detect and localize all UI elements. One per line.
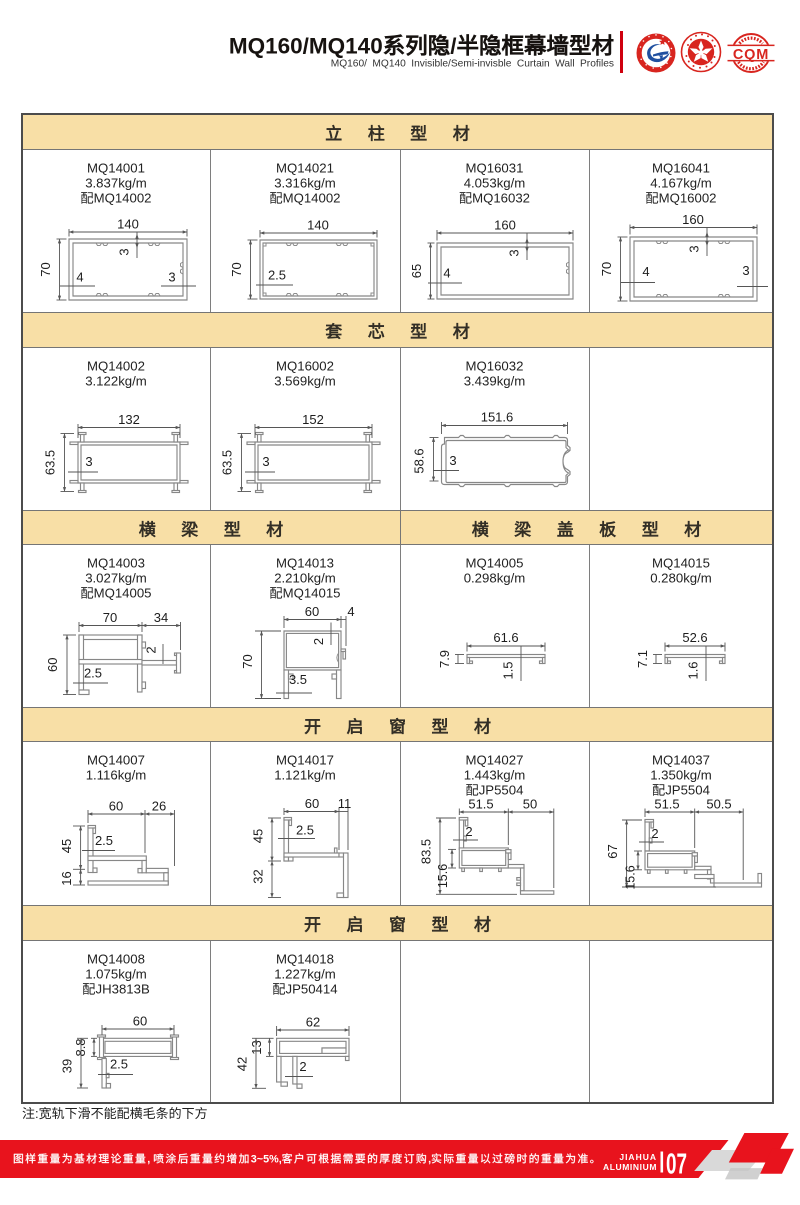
svg-text:MQ14001: MQ14001 bbox=[87, 160, 145, 175]
svg-text:63.5: 63.5 bbox=[43, 450, 58, 475]
svg-text:MQ14015: MQ14015 bbox=[652, 555, 710, 570]
svg-text:MQ14002: MQ14002 bbox=[87, 358, 145, 373]
svg-text:4: 4 bbox=[443, 266, 450, 281]
svg-text:07: 07 bbox=[666, 1149, 687, 1181]
svg-text:3.5: 3.5 bbox=[289, 672, 307, 687]
svg-text:2.5: 2.5 bbox=[268, 268, 286, 283]
svg-text:3: 3 bbox=[449, 453, 456, 468]
svg-text:32: 32 bbox=[251, 869, 266, 883]
svg-text:4: 4 bbox=[642, 264, 649, 279]
svg-text:MQ16002: MQ16002 bbox=[659, 191, 717, 206]
svg-text:3~5%,: 3~5%, bbox=[251, 1154, 282, 1166]
svg-text:1.075kg/m: 1.075kg/m bbox=[85, 967, 147, 982]
svg-text:7.1: 7.1 bbox=[635, 650, 650, 668]
svg-text:1.5: 1.5 bbox=[501, 661, 516, 679]
svg-text:0.298kg/m: 0.298kg/m bbox=[464, 571, 526, 586]
svg-text:3.316kg/m: 3.316kg/m bbox=[274, 176, 336, 191]
svg-text:140: 140 bbox=[307, 218, 329, 233]
svg-text:60: 60 bbox=[305, 796, 319, 811]
svg-text:26: 26 bbox=[152, 799, 166, 814]
svg-text:4: 4 bbox=[76, 270, 83, 285]
svg-text:70: 70 bbox=[240, 654, 255, 668]
svg-text:15.6: 15.6 bbox=[624, 865, 638, 889]
svg-text:MQ16032: MQ16032 bbox=[466, 358, 524, 373]
svg-text::: : bbox=[35, 1106, 39, 1121]
svg-text:2: 2 bbox=[651, 826, 658, 841]
svg-text:160: 160 bbox=[682, 212, 704, 227]
svg-text:151.6: 151.6 bbox=[481, 410, 514, 425]
svg-text:3.837kg/m: 3.837kg/m bbox=[85, 176, 147, 191]
svg-text:16: 16 bbox=[59, 871, 74, 885]
svg-text:34: 34 bbox=[154, 610, 168, 625]
svg-text:51.5: 51.5 bbox=[654, 797, 679, 812]
svg-text:140: 140 bbox=[117, 217, 139, 232]
svg-text:70: 70 bbox=[229, 262, 244, 276]
svg-text:52.6: 52.6 bbox=[682, 630, 707, 645]
svg-text:3: 3 bbox=[687, 245, 702, 252]
svg-text:60: 60 bbox=[133, 1014, 147, 1029]
svg-text:1.121kg/m: 1.121kg/m bbox=[274, 768, 336, 783]
svg-text:42: 42 bbox=[235, 1057, 250, 1071]
svg-text:MQ14002: MQ14002 bbox=[283, 191, 341, 206]
svg-text:63.5: 63.5 bbox=[220, 450, 235, 475]
svg-text:MQ14017: MQ14017 bbox=[276, 752, 334, 767]
svg-text:7.9: 7.9 bbox=[437, 650, 452, 668]
svg-text:2.5: 2.5 bbox=[110, 1057, 128, 1072]
svg-text:62: 62 bbox=[306, 1015, 320, 1030]
svg-text:,: , bbox=[147, 1154, 150, 1166]
svg-text:50.5: 50.5 bbox=[706, 797, 731, 812]
svg-text:83.5: 83.5 bbox=[419, 839, 434, 864]
svg-text:4.167kg/m: 4.167kg/m bbox=[650, 176, 712, 191]
svg-text:JP50414: JP50414 bbox=[286, 982, 338, 997]
svg-text:MQ14013: MQ14013 bbox=[276, 555, 334, 570]
svg-text:8.8: 8.8 bbox=[73, 1038, 88, 1056]
svg-text:MQ16041: MQ16041 bbox=[652, 160, 710, 175]
svg-text:,: , bbox=[428, 1154, 431, 1166]
svg-text:2.5: 2.5 bbox=[84, 666, 102, 681]
svg-text:70: 70 bbox=[599, 262, 614, 276]
svg-text:60: 60 bbox=[109, 799, 123, 814]
svg-text:2.210kg/m: 2.210kg/m bbox=[274, 571, 336, 586]
svg-text:MQ160/ MQ140 Invisible/Semi-i: MQ160/ MQ140 Invisible/Semi-invisble Cur… bbox=[331, 59, 614, 70]
svg-text:1.350kg/m: 1.350kg/m bbox=[650, 768, 712, 783]
svg-text:2: 2 bbox=[465, 824, 472, 839]
svg-text:51.5: 51.5 bbox=[468, 797, 493, 812]
svg-text:1.116kg/m: 1.116kg/m bbox=[86, 768, 147, 783]
svg-text:3.027kg/m: 3.027kg/m bbox=[85, 571, 147, 586]
svg-text:2: 2 bbox=[311, 638, 326, 645]
svg-text:JP5504: JP5504 bbox=[479, 783, 524, 798]
svg-text:3.569kg/m: 3.569kg/m bbox=[274, 374, 336, 389]
svg-text:2.5: 2.5 bbox=[95, 833, 113, 848]
svg-text:60: 60 bbox=[45, 658, 60, 672]
svg-text:3: 3 bbox=[507, 249, 522, 256]
svg-text:MQ160/MQ140: MQ160/MQ140 bbox=[229, 34, 383, 59]
svg-text:JP5504: JP5504 bbox=[665, 783, 710, 798]
svg-text:4: 4 bbox=[347, 604, 354, 619]
svg-text:MQ14037: MQ14037 bbox=[652, 752, 710, 767]
svg-text:65: 65 bbox=[409, 264, 424, 278]
svg-text:MQ14021: MQ14021 bbox=[276, 160, 334, 175]
svg-text:50: 50 bbox=[523, 797, 537, 812]
svg-text:3.439kg/m: 3.439kg/m bbox=[464, 374, 526, 389]
svg-text:160: 160 bbox=[494, 218, 516, 233]
svg-text:2: 2 bbox=[144, 646, 159, 653]
svg-text:MQ14015: MQ14015 bbox=[283, 586, 341, 601]
svg-text:132: 132 bbox=[118, 412, 140, 427]
svg-text:1.6: 1.6 bbox=[686, 661, 701, 679]
svg-text:3: 3 bbox=[117, 248, 132, 255]
svg-text:39: 39 bbox=[60, 1059, 75, 1073]
svg-text:1.443kg/m: 1.443kg/m bbox=[464, 768, 526, 783]
svg-text:MQ16002: MQ16002 bbox=[276, 358, 334, 373]
svg-text:152: 152 bbox=[302, 412, 324, 427]
svg-text:70: 70 bbox=[38, 262, 53, 276]
svg-text:3: 3 bbox=[262, 454, 269, 469]
svg-text:60: 60 bbox=[305, 604, 319, 619]
svg-text:MQ16032: MQ16032 bbox=[472, 191, 530, 206]
svg-text:13: 13 bbox=[249, 1040, 264, 1054]
svg-text:3: 3 bbox=[168, 270, 175, 285]
svg-text:67: 67 bbox=[605, 844, 620, 858]
svg-text:3: 3 bbox=[85, 454, 92, 469]
svg-text:JH3813B: JH3813B bbox=[96, 982, 150, 997]
svg-text:3.122kg/m: 3.122kg/m bbox=[85, 374, 147, 389]
svg-text:45: 45 bbox=[251, 829, 266, 843]
svg-text:70: 70 bbox=[103, 610, 117, 625]
svg-text:45: 45 bbox=[59, 839, 74, 853]
svg-text:MQ14005: MQ14005 bbox=[94, 586, 152, 601]
svg-text:MQ14005: MQ14005 bbox=[466, 555, 524, 570]
svg-text:2.5: 2.5 bbox=[296, 823, 314, 838]
svg-text:MQ14008: MQ14008 bbox=[87, 951, 145, 966]
svg-text:MQ16031: MQ16031 bbox=[466, 160, 524, 175]
svg-text:CQM: CQM bbox=[733, 47, 769, 63]
svg-text:MQ14007: MQ14007 bbox=[87, 752, 145, 767]
svg-text:1.227kg/m: 1.227kg/m bbox=[274, 967, 336, 982]
svg-text:/: / bbox=[450, 34, 457, 59]
svg-text:11: 11 bbox=[338, 796, 352, 811]
svg-text:ALUMINIUM: ALUMINIUM bbox=[603, 1162, 657, 1172]
svg-text:MQ14003: MQ14003 bbox=[87, 555, 145, 570]
svg-text:MQ14027: MQ14027 bbox=[466, 752, 524, 767]
svg-text:61.6: 61.6 bbox=[493, 630, 518, 645]
svg-text:15.6: 15.6 bbox=[436, 864, 450, 888]
svg-text:0.280kg/m: 0.280kg/m bbox=[650, 571, 712, 586]
svg-text:2: 2 bbox=[299, 1059, 306, 1074]
svg-text:MQ14018: MQ14018 bbox=[276, 951, 334, 966]
svg-text:3: 3 bbox=[742, 263, 749, 278]
svg-text:MQ14002: MQ14002 bbox=[94, 191, 152, 206]
svg-text:JIAHUA: JIAHUA bbox=[619, 1152, 657, 1162]
svg-text:4.053kg/m: 4.053kg/m bbox=[464, 176, 526, 191]
svg-text:58.6: 58.6 bbox=[412, 448, 427, 473]
